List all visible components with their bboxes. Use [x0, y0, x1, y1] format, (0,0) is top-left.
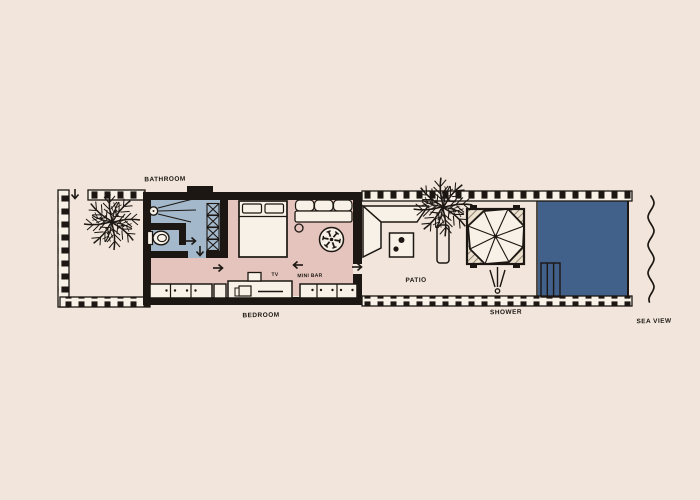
- patio-label: PATIO: [405, 277, 426, 284]
- bed-icon: [239, 201, 287, 257]
- mini-bar-icon: [300, 284, 357, 298]
- shower-label: SHOWER: [490, 309, 522, 317]
- patio-door-arrow-icon: [352, 264, 362, 271]
- cabinets-icon: [150, 284, 226, 298]
- outdoor-shower-icon: [490, 267, 505, 293]
- ceiling-fan-icon: [320, 228, 344, 252]
- mini-bar-label: MINI BAR: [297, 272, 322, 278]
- entrance-arrow-icon: [72, 189, 79, 199]
- floor-plan-illustration: BATHROOM BEDROOM PATIO SHOWER SEA VIEW T…: [0, 0, 700, 500]
- tv-icon: [248, 273, 261, 282]
- bedroom-label: BEDROOM: [242, 312, 279, 320]
- pool: [538, 200, 628, 297]
- toilet-icon: [148, 231, 170, 245]
- palm-tree-garden-icon: [84, 194, 140, 250]
- bathroom-label: BATHROOM: [144, 176, 186, 184]
- wall-top-garden: [88, 190, 145, 200]
- sea-wave-icon: [648, 196, 654, 302]
- wall-bottom-garden: [60, 297, 150, 307]
- umbrella-icon: [468, 209, 524, 264]
- drinks-table-icon: [390, 233, 414, 257]
- sea-view-label: SEA VIEW: [636, 318, 671, 326]
- floor-plan-drawing: [0, 0, 700, 500]
- sofa-icon: [295, 200, 352, 222]
- tv-label: TV: [271, 272, 278, 278]
- tv-console-icon: [228, 281, 292, 298]
- wall-bottom-patio-pool: [362, 296, 632, 306]
- wall-top-patio-pool: [362, 191, 632, 201]
- wall-left: [58, 190, 69, 307]
